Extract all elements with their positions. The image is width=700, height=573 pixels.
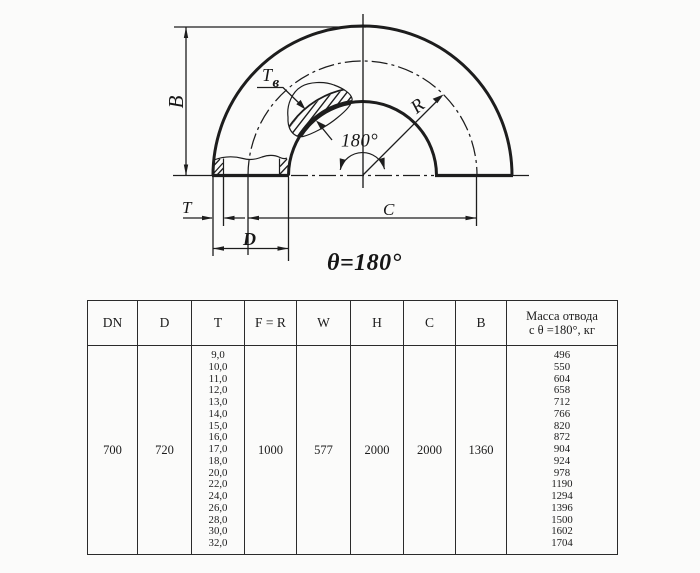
svg-text:в: в bbox=[273, 75, 280, 91]
svg-text:θ=180°: θ=180° bbox=[327, 250, 402, 276]
svg-text:C: C bbox=[383, 200, 395, 219]
svg-text:T: T bbox=[182, 198, 193, 217]
svg-text:180°: 180° bbox=[341, 132, 378, 152]
svg-text:D: D bbox=[242, 229, 256, 249]
svg-text:R: R bbox=[406, 94, 429, 119]
svg-text:B: B bbox=[164, 95, 188, 108]
